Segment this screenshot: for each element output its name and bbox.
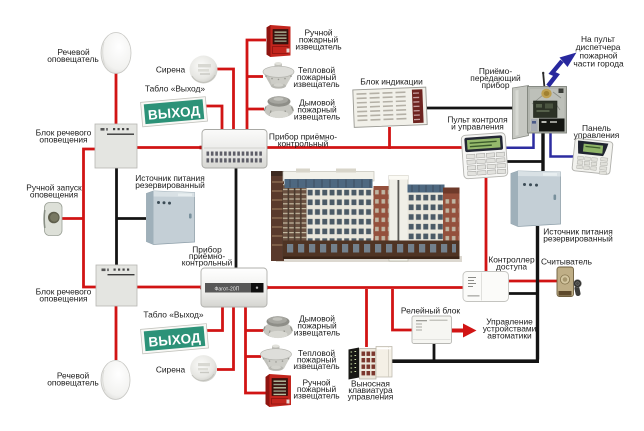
svg-text:прибор: прибор <box>482 80 510 90</box>
svg-text:управления: управления <box>348 392 394 402</box>
svg-text:автоматики: автоматики <box>487 331 532 341</box>
svg-text:Блок индикации: Блок индикации <box>360 77 423 87</box>
svg-text:оповещения: оповещения <box>39 294 87 304</box>
svg-text:Табло «Выход»: Табло «Выход» <box>143 310 203 320</box>
svg-text:оповещения: оповещения <box>39 135 87 145</box>
svg-text:резервированный: резервированный <box>135 180 205 190</box>
svg-text:извещатель: извещатель <box>293 391 340 401</box>
svg-text:оповещения: оповещения <box>30 190 78 200</box>
svg-text:извещатель: извещатель <box>293 361 340 371</box>
svg-text:оповещатель: оповещатель <box>47 378 99 388</box>
svg-text:извещатель: извещатель <box>294 112 341 122</box>
svg-text:доступа: доступа <box>496 262 527 272</box>
svg-text:оповещатель: оповещатель <box>47 54 99 64</box>
svg-text:контрольный: контрольный <box>182 258 233 268</box>
svg-text:извещатель: извещатель <box>295 42 342 52</box>
svg-text:Считыватель: Считыватель <box>541 257 593 267</box>
svg-text:Табло «Выход»: Табло «Выход» <box>145 84 205 94</box>
svg-text:извещатель: извещатель <box>293 79 340 89</box>
svg-text:контрольный: контрольный <box>278 139 329 149</box>
svg-text:Сирена: Сирена <box>156 365 186 375</box>
svg-text:и управления: и управления <box>451 122 504 132</box>
svg-text:извещатель: извещатель <box>294 328 341 338</box>
svg-text:Релейный блок: Релейный блок <box>401 306 461 316</box>
svg-text:Сирена: Сирена <box>156 65 186 75</box>
svg-text:резервированный: резервированный <box>543 234 613 244</box>
svg-text:Фагот-20П: Фагот-20П <box>215 286 240 292</box>
svg-text:части города: части города <box>573 59 624 69</box>
svg-text:управления: управления <box>574 130 620 140</box>
